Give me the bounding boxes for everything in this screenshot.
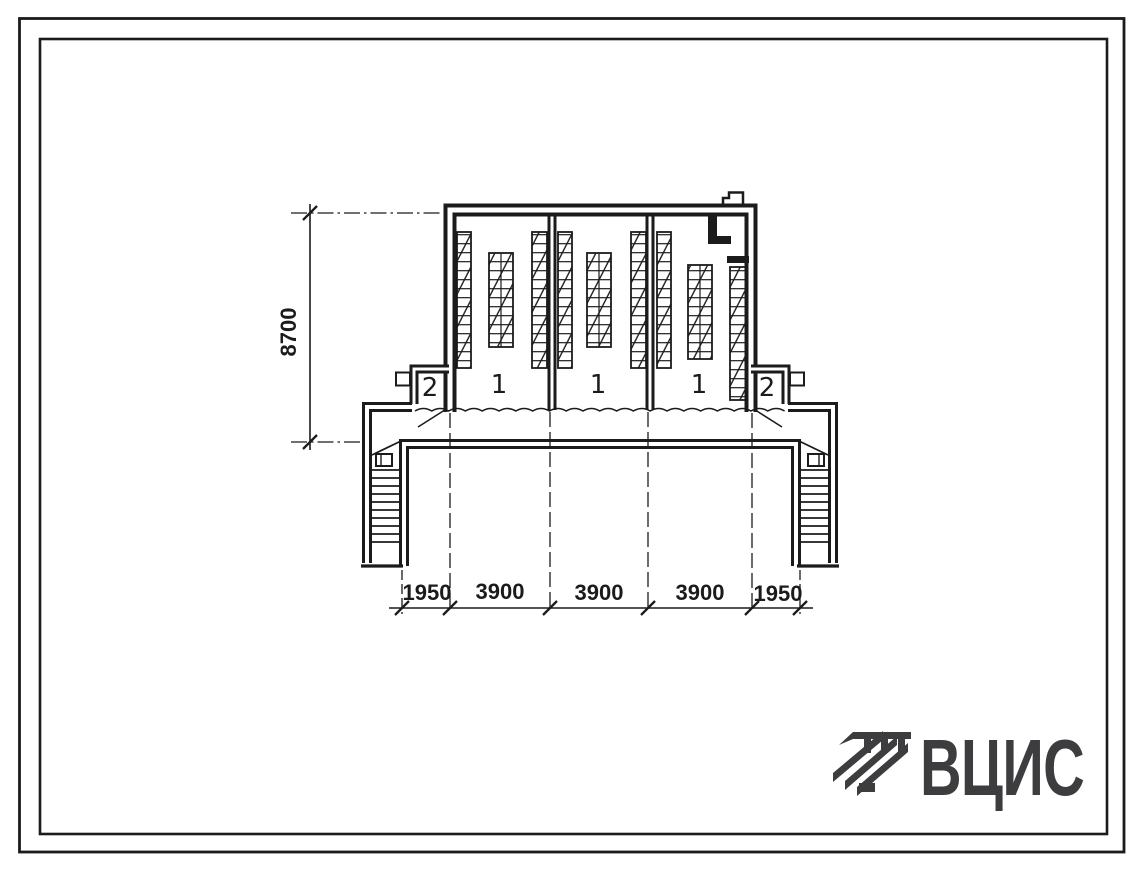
wall-step-bar [727, 256, 749, 263]
dimension-label: 1950 [754, 581, 803, 606]
room-label: 2 [422, 373, 439, 403]
room-label: 2 [759, 373, 776, 403]
dimension-label: 3900 [676, 580, 725, 605]
blueprint-canvas: 1950 3900 3900 3900 1950 8700 2 1 1 1 2 [0, 0, 1139, 869]
room-label: 1 [491, 370, 508, 400]
dimension-label: 8700 [276, 308, 301, 357]
dimension-label: 1950 [403, 580, 452, 605]
room-label: 1 [691, 370, 708, 400]
hatched-panel-bay2 [558, 232, 646, 368]
dimension-label: 3900 [575, 580, 624, 605]
dimension-label: 3900 [476, 579, 525, 604]
room-label: 1 [590, 370, 607, 400]
hatched-panel-bay1 [457, 232, 547, 368]
vcis-logo-text: ВЦИС [920, 723, 1084, 812]
